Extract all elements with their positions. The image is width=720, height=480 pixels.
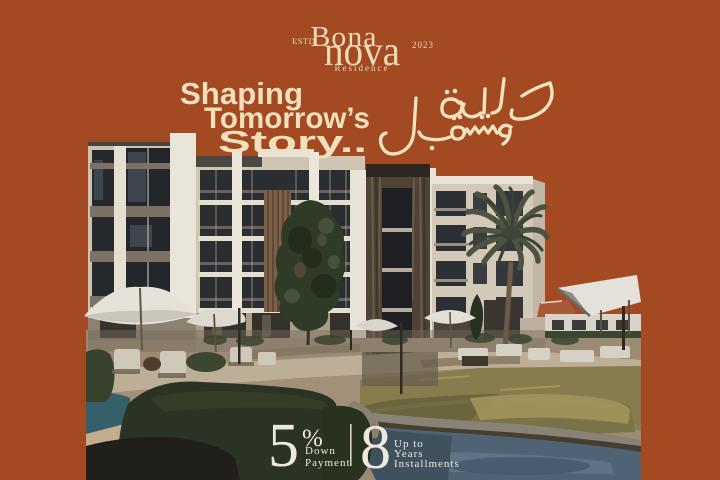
svg-text:2023: 2023 <box>412 40 434 50</box>
svg-text:5: 5 <box>268 412 299 480</box>
svg-text:Story..: Story.. <box>218 124 367 159</box>
svg-text:ESTD.: ESTD. <box>292 36 318 46</box>
svg-text:8: 8 <box>360 414 391 480</box>
svg-text:Down: Down <box>305 445 336 457</box>
svg-text:Installments: Installments <box>394 458 460 470</box>
svg-text:Payment: Payment <box>305 457 351 469</box>
svg-text:Residence: Residence <box>335 63 390 73</box>
